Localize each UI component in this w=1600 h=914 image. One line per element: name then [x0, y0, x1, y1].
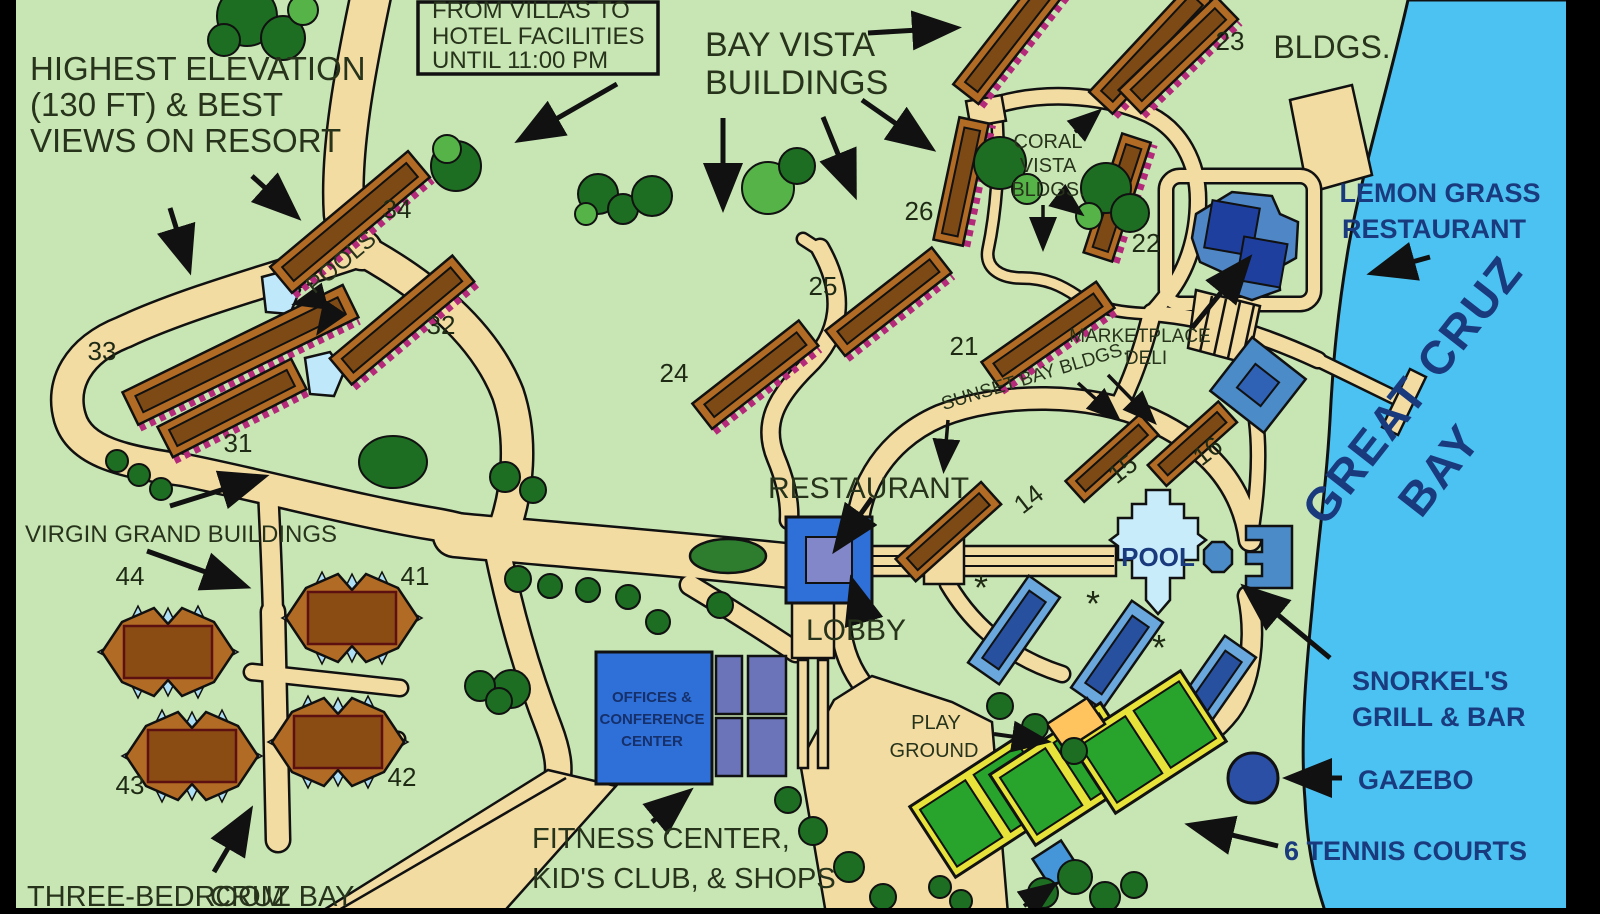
left-frame-bar — [0, 0, 16, 914]
fitness-label-2: KID'S CLUB, & SHOPS — [532, 863, 836, 895]
offices-label-1: OFFICES & — [612, 689, 692, 706]
gazebo-label: GAZEBO — [1358, 765, 1474, 795]
lobby-label: LOBBY — [806, 614, 906, 647]
restaurant-label: RESTAURANT — [768, 472, 969, 505]
coral-vista-label-2: VISTA — [1020, 155, 1077, 177]
number-24: 24 — [660, 358, 689, 388]
lobby-drive-lane2 — [818, 660, 828, 768]
pool-label: POOL — [1121, 542, 1195, 572]
bay-vista-label-2: BUILDINGS — [705, 64, 888, 102]
road-median-planting — [690, 539, 766, 573]
asterisk-3: * — [1152, 627, 1166, 668]
number-33: 33 — [88, 336, 117, 366]
number-23: 23 — [1216, 26, 1245, 56]
snorkels-building — [1246, 526, 1292, 588]
lobby-drive-lane1 — [798, 660, 808, 768]
snorkels-label-2: GRILL & BAR — [1352, 702, 1526, 732]
asterisk-1: * — [974, 567, 988, 608]
number-21: 21 — [950, 331, 979, 361]
number-41: 41 — [401, 561, 430, 591]
number-26: 26 — [905, 196, 934, 226]
highest-elevation-label-2: (130 FT) & BEST — [30, 86, 283, 123]
number-31: 31 — [224, 428, 253, 458]
right-frame-bar — [1566, 0, 1600, 914]
notice-line2: HOTEL FACILITIES — [432, 23, 645, 50]
notice-line3: UNTIL 11:00 PM — [432, 47, 608, 74]
coral-vista-label-3: BLDGS. — [1011, 179, 1084, 201]
number-22: 22 — [1132, 228, 1161, 258]
number-32: 32 — [427, 310, 456, 340]
number-25: 25 — [809, 271, 838, 301]
number-43: 43 — [116, 770, 145, 800]
tennis-label: 6 TENNIS COURTS — [1284, 836, 1527, 866]
gazebo-structure — [1228, 753, 1278, 803]
fitness-label-1: FITNESS CENTER, — [532, 823, 790, 855]
hot-tub — [1204, 542, 1232, 572]
playground-label-1: PLAY — [911, 712, 961, 734]
highest-elevation-label-1: HIGHEST ELEVATION — [30, 50, 366, 87]
lemon-grass-label-2: RESTAURANT — [1342, 214, 1526, 244]
resort-map: FROM VILLAS TO HOTEL FACILITIES UNTIL 11… — [0, 0, 1600, 914]
marketplace-deli-label-1: MARKETPLACE — [1069, 326, 1210, 347]
marketplace-deli-label-2: DELI — [1125, 348, 1167, 369]
offices-label-2: CONFERENCE — [599, 711, 704, 728]
map-canvas: FROM VILLAS TO HOTEL FACILITIES UNTIL 11… — [0, 0, 1600, 914]
lemon-grass-label-1: LEMON GRASS — [1339, 178, 1540, 208]
coral-vista-label-1: CORAL — [1014, 131, 1083, 153]
playground-label-2: GROUND — [890, 740, 979, 762]
number-42: 42 — [388, 762, 417, 792]
highest-elevation-label-3: VIEWS ON RESORT — [30, 122, 341, 159]
notice-line1: FROM VILLAS TO — [432, 0, 630, 24]
restaurant-building-core — [806, 537, 852, 583]
bottom-frame-bar — [0, 908, 1600, 914]
bldgs-top-label: BLDGS. — [1273, 29, 1390, 65]
snorkels-label-1: SNORKEL'S — [1352, 666, 1508, 696]
asterisk-2: * — [1086, 583, 1100, 624]
virgin-grand-label: VIRGIN GRAND BUILDINGS — [25, 521, 337, 548]
offices-label-3: CENTER — [621, 733, 683, 750]
number-34: 34 — [383, 194, 412, 224]
number-44: 44 — [116, 561, 145, 591]
bay-vista-label-1: BAY VISTA — [705, 26, 875, 64]
